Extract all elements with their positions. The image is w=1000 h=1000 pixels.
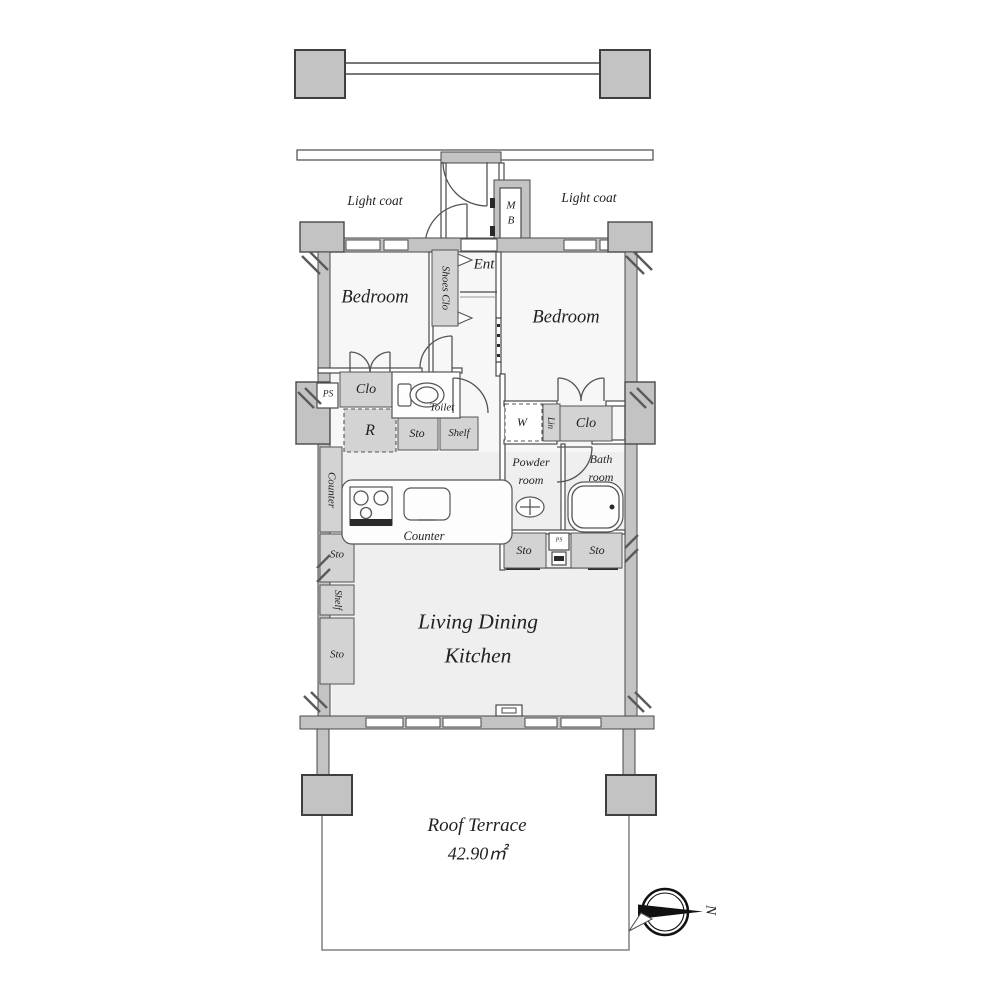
linen-label: Lin [546, 417, 556, 429]
top-railing [295, 50, 650, 98]
closet-left-label: Clo [356, 382, 376, 398]
shoes-closet-label: Shoes Clo [439, 266, 452, 310]
roof-terrace-label: Roof Terrace [427, 815, 526, 837]
pipe-space-small-label: PS [556, 538, 563, 545]
storage-kitchen-label: Sto [409, 427, 424, 441]
roof-terrace-area-label: 42.90㎡ [448, 844, 507, 865]
floor-plan: Light coat Light coat M B Ent Shoes Clo … [0, 0, 1000, 1000]
compass [629, 889, 703, 935]
light-coat-right-label: Light coat [561, 190, 616, 206]
washer-label: W [517, 416, 527, 430]
sink-fixture [404, 488, 450, 520]
entrance-label: Ent [474, 256, 495, 273]
entrance-porch-doors [425, 162, 487, 246]
meter-box-label-b: B [508, 215, 515, 228]
ldk-label-1: Living Dining [418, 610, 538, 635]
bath-room-label-2: room [589, 471, 614, 485]
storage-wash-left-label: Sto [516, 544, 531, 558]
shelf-wall-label: Shelf [331, 590, 343, 610]
light-coat-left-label: Light coat [347, 193, 402, 209]
closet-right-label: Clo [576, 416, 596, 432]
roof-terrace-outline [322, 729, 629, 950]
pipe-space-label: PS [323, 390, 334, 401]
storage-wash-right-label: Sto [589, 544, 604, 558]
storage-wall-top-label: Sto [330, 549, 344, 562]
storage-wall-bottom-label: Sto [330, 649, 344, 662]
meter-box-label-m: M [506, 200, 515, 213]
toilet-label: Toilet [430, 402, 455, 415]
terrace-columns [302, 729, 656, 815]
refrigerator-label: R [365, 422, 375, 440]
bath-room-label-1: Bath [590, 453, 613, 467]
compass-north-label: N [701, 905, 718, 915]
powder-room-label-2: room [519, 474, 544, 488]
bedroom-left-label: Bedroom [341, 287, 408, 308]
powder-room-label-1: Powder [512, 456, 549, 470]
ldk-label-2: Kitchen [445, 644, 512, 669]
bedroom-right-label: Bedroom [532, 307, 599, 328]
shelf-kitchen-label: Shelf [449, 428, 470, 440]
counter-side-label: Counter [325, 472, 338, 508]
counter-front-label: Counter [404, 529, 445, 543]
